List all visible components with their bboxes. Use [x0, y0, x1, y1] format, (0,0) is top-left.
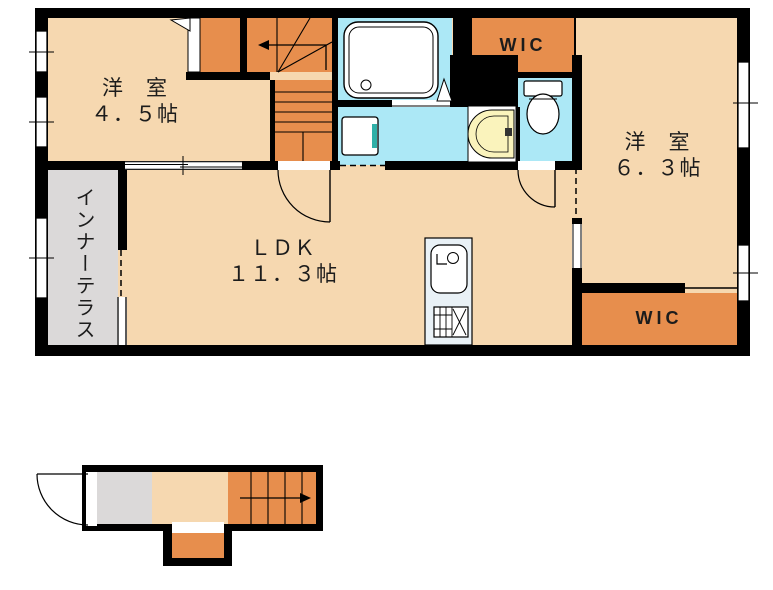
- kitchen-counter: [425, 238, 472, 345]
- washing-machine-pan: [342, 117, 378, 155]
- second-floor-plan: [29, 8, 758, 356]
- room63-name: 洋 室: [575, 130, 740, 156]
- first-floor-entrance: [37, 465, 323, 566]
- floorplan-page: 洋 室 ４．５帖 ＬＤＫ １１．３帖 洋 室 ６．３帖 WIC WIC インナー…: [0, 0, 773, 590]
- entrance-porch-step: [163, 522, 232, 566]
- ldk-size: １１．３帖: [168, 262, 398, 288]
- room63-size: ６．３帖: [575, 156, 740, 182]
- inner-terrace-label: インナーテラス: [68, 183, 98, 345]
- room63-label: 洋 室 ６．３帖: [575, 130, 740, 182]
- entrance-door: [37, 472, 97, 526]
- entrance-doma-floor: [92, 472, 152, 524]
- kitchen-stove: [434, 307, 468, 337]
- ldk-label: ＬＤＫ １１．３帖: [168, 236, 398, 288]
- entrance-hall-floor: [152, 472, 228, 524]
- washbasin: [468, 106, 516, 162]
- closet-floor: [199, 18, 240, 72]
- room45-size: ４．５帖: [50, 102, 220, 128]
- ldk-name: ＬＤＫ: [168, 236, 398, 262]
- room45-name: 洋 室: [50, 76, 220, 102]
- wic-lower-label: WIC: [581, 308, 737, 329]
- kitchen-sink: [431, 245, 467, 293]
- room45-label: 洋 室 ４．５帖: [50, 76, 220, 128]
- toilet: [524, 81, 562, 134]
- bathtub: [344, 22, 438, 98]
- wic-upper-label: WIC: [472, 35, 574, 56]
